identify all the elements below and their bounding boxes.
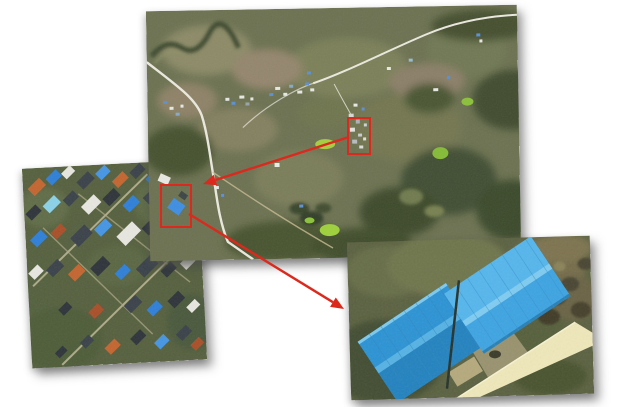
warehouse-zoom-inset [347, 236, 594, 401]
overview-satellite-image [146, 5, 521, 261]
overview-noise-texture [146, 5, 521, 261]
warehouse-noise-texture [347, 236, 594, 401]
figure-canvas [0, 0, 629, 407]
highlight-box-blue-roof-building [160, 184, 192, 228]
overview-aerial-art [146, 5, 521, 261]
warehouse-aerial-art [347, 236, 594, 401]
highlight-box-building-cluster [347, 117, 371, 155]
